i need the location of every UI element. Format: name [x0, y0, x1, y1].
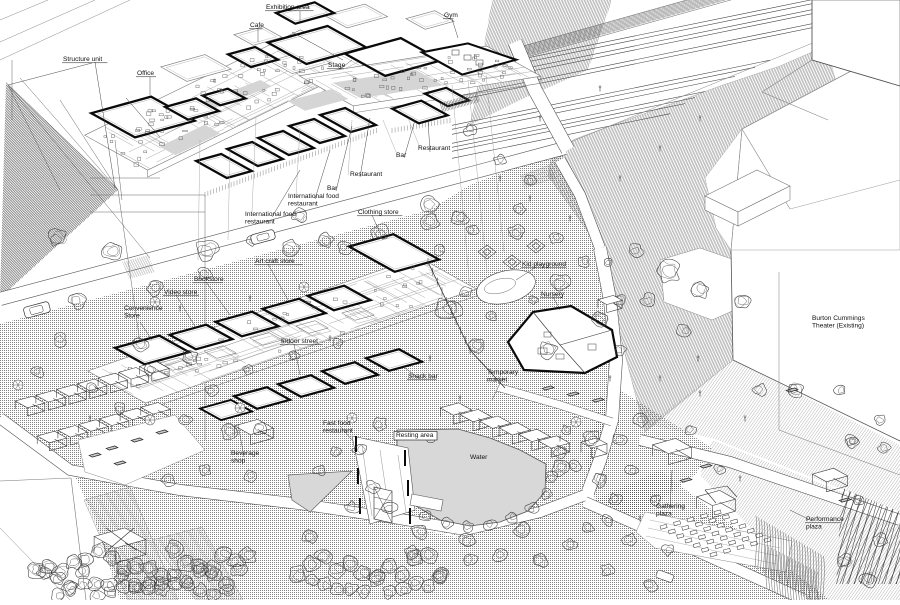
svg-text:restaurant: restaurant [245, 218, 275, 225]
svg-text:Restaurant: Restaurant [418, 145, 450, 152]
svg-text:restaurant: restaurant [288, 200, 318, 207]
svg-text:shop: shop [231, 457, 246, 464]
svg-text:market: market [487, 376, 507, 383]
svg-text:Restaurant: Restaurant [350, 171, 382, 178]
svg-text:Indoor street: Indoor street [281, 338, 318, 345]
svg-text:Bar: Bar [396, 152, 407, 159]
svg-text:Water: Water [470, 454, 488, 461]
svg-text:Burton Cummings: Burton Cummings [812, 315, 865, 322]
svg-text:plaza: plaza [656, 510, 672, 517]
svg-text:Office: Office [137, 70, 154, 77]
svg-text:Snack bar: Snack bar [408, 373, 438, 380]
svg-text:Exhibition area: Exhibition area [266, 4, 310, 11]
svg-text:Beverage: Beverage [231, 450, 260, 457]
svg-text:Convenience: Convenience [124, 305, 163, 312]
svg-text:Gathering: Gathering [656, 503, 685, 510]
svg-text:Clothing store: Clothing store [358, 209, 399, 216]
svg-text:plaza: plaza [806, 523, 822, 530]
svg-text:Resting area: Resting area [396, 432, 434, 439]
svg-text:Video store: Video store [164, 289, 198, 296]
svg-text:Performance: Performance [806, 516, 844, 523]
svg-text:Art craft store: Art craft store [255, 258, 295, 265]
svg-text:International food: International food [245, 211, 296, 218]
svg-text:Stage: Stage [328, 62, 346, 69]
svg-text:International food: International food [288, 193, 339, 200]
svg-text:Bookstore: Bookstore [194, 276, 224, 283]
svg-text:Temporary: Temporary [487, 369, 519, 376]
svg-text:Nursery: Nursery [541, 291, 565, 298]
svg-text:Kid playground: Kid playground [522, 261, 566, 268]
svg-text:restaurant: restaurant [323, 427, 353, 434]
svg-text:Bar: Bar [327, 185, 338, 192]
svg-text:Store: Store [124, 312, 140, 319]
svg-text:Structure unit: Structure unit [63, 56, 102, 63]
svg-text:Theater (Existing): Theater (Existing) [812, 322, 864, 329]
svg-text:Cafe: Cafe [250, 22, 264, 29]
svg-text:Gym: Gym [444, 12, 458, 19]
svg-text:Fast food: Fast food [323, 420, 351, 427]
